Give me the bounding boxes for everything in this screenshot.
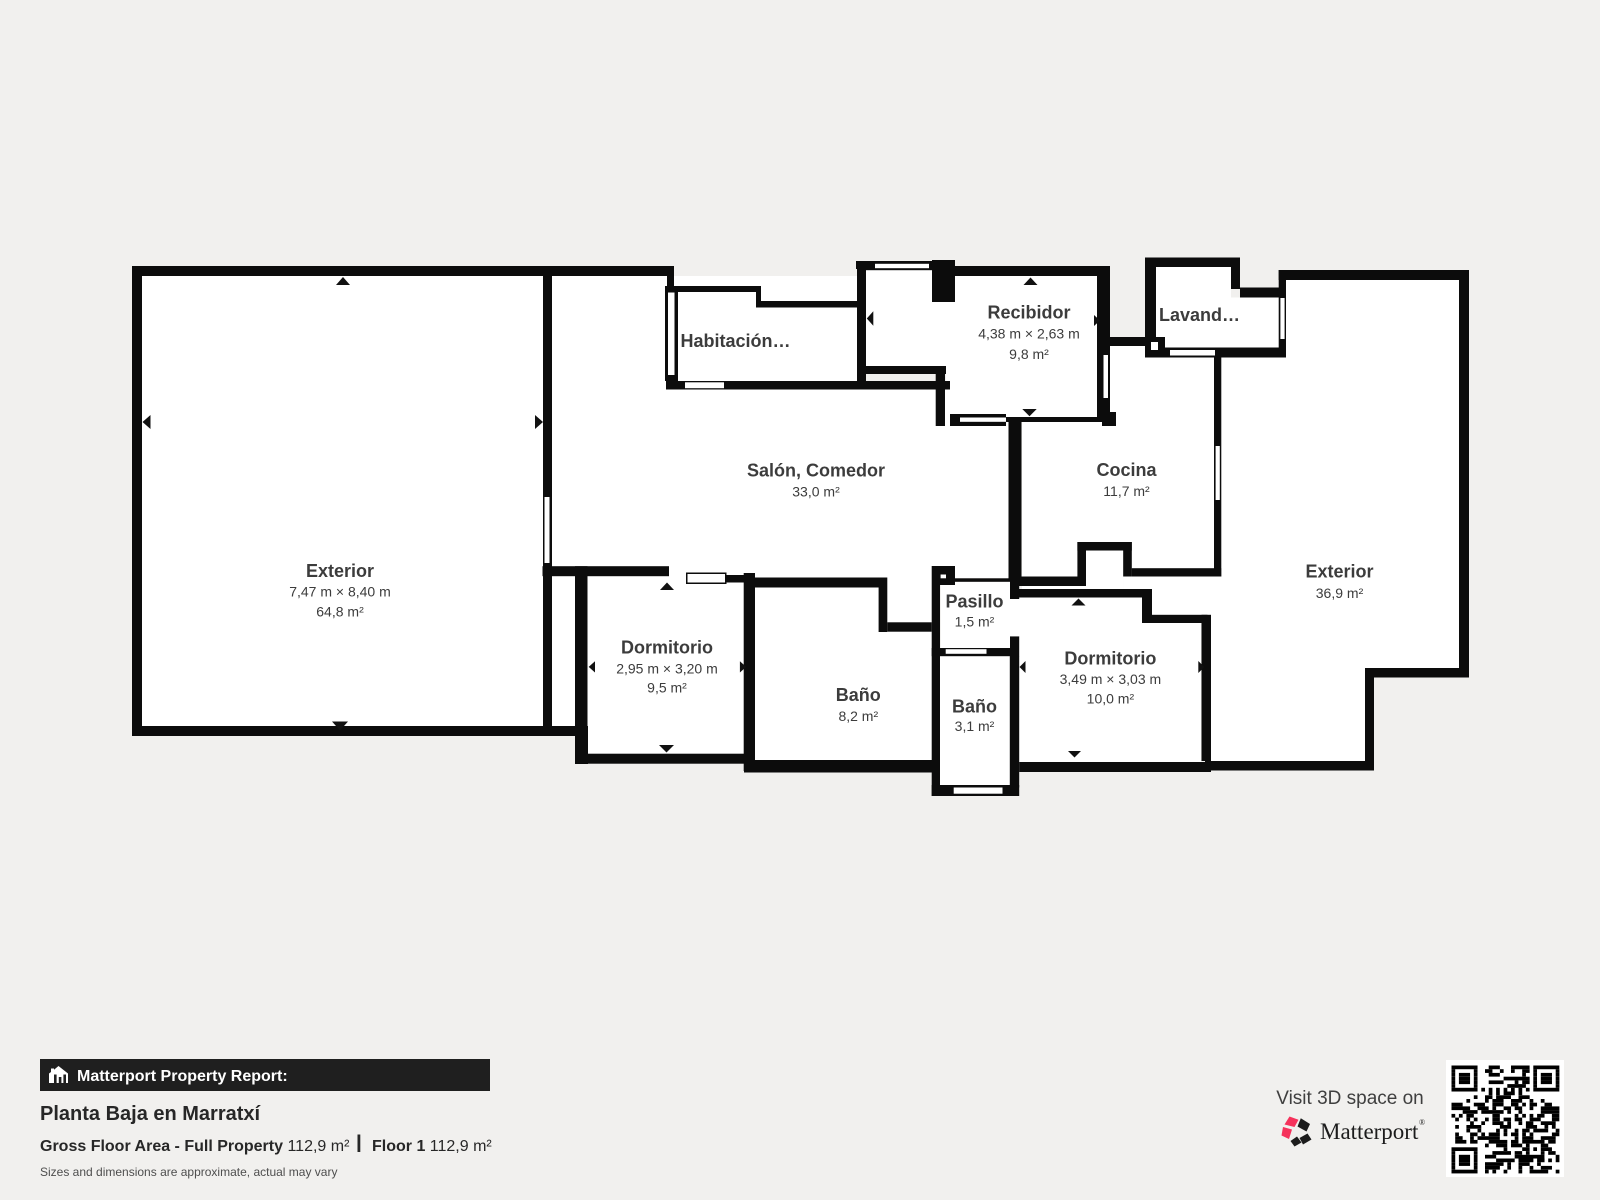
svg-text:9,5 m²: 9,5 m² (647, 680, 687, 696)
svg-text:Sizes and dimensions are appro: Sizes and dimensions are approximate, ac… (40, 1165, 337, 1179)
svg-text:Baño: Baño (836, 685, 881, 705)
svg-text:Matterport: Matterport (1320, 1119, 1419, 1144)
svg-text:7,47 m × 8,40 m: 7,47 m × 8,40 m (289, 584, 391, 600)
svg-text:Recibidor: Recibidor (987, 303, 1070, 323)
svg-text:Dormitorio: Dormitorio (1064, 649, 1156, 669)
svg-text:Dormitorio: Dormitorio (621, 637, 713, 657)
svg-text:3,49 m × 3,03 m: 3,49 m × 3,03 m (1060, 671, 1162, 687)
svg-text:Salón, Comedor: Salón, Comedor (747, 461, 885, 481)
svg-text:3,1 m²: 3,1 m² (955, 718, 995, 734)
svg-text:Cocina: Cocina (1096, 460, 1157, 480)
svg-text:Habitación…: Habitación… (680, 331, 790, 351)
svg-text:8,2 m²: 8,2 m² (838, 708, 878, 724)
svg-text:9,8 m²: 9,8 m² (1009, 346, 1049, 362)
svg-text:Planta Baja en Marratxí: Planta Baja en Marratxí (40, 1103, 262, 1125)
svg-text:Baño: Baño (952, 697, 997, 717)
svg-text:4,38 m × 2,63 m: 4,38 m × 2,63 m (978, 326, 1080, 342)
svg-text:33,0 m²: 33,0 m² (792, 484, 840, 500)
svg-text:Visit 3D space on: Visit 3D space on (1276, 1088, 1424, 1109)
svg-text:Matterport Property Report:: Matterport Property Report: (77, 1068, 288, 1085)
svg-text:64,8 m²: 64,8 m² (316, 603, 364, 619)
svg-text:2,95 m × 3,20 m: 2,95 m × 3,20 m (616, 660, 718, 676)
svg-text:1,5 m²: 1,5 m² (955, 613, 995, 629)
svg-text:36,9 m²: 36,9 m² (1316, 585, 1364, 601)
svg-text:Lavand…: Lavand… (1159, 305, 1240, 325)
svg-text:10,0 m²: 10,0 m² (1087, 691, 1135, 707)
svg-text:11,7 m²: 11,7 m² (1103, 483, 1150, 499)
svg-text:Exterior: Exterior (1305, 562, 1373, 582)
svg-text:Pasillo: Pasillo (945, 592, 1003, 612)
svg-text:®: ® (1419, 1118, 1425, 1127)
svg-text:Floor 1 112,9 m²: Floor 1 112,9 m² (372, 1138, 492, 1155)
svg-text:Exterior: Exterior (306, 561, 374, 581)
svg-text:Gross Floor Area - Full Proper: Gross Floor Area - Full Property 112,9 m… (40, 1138, 350, 1155)
